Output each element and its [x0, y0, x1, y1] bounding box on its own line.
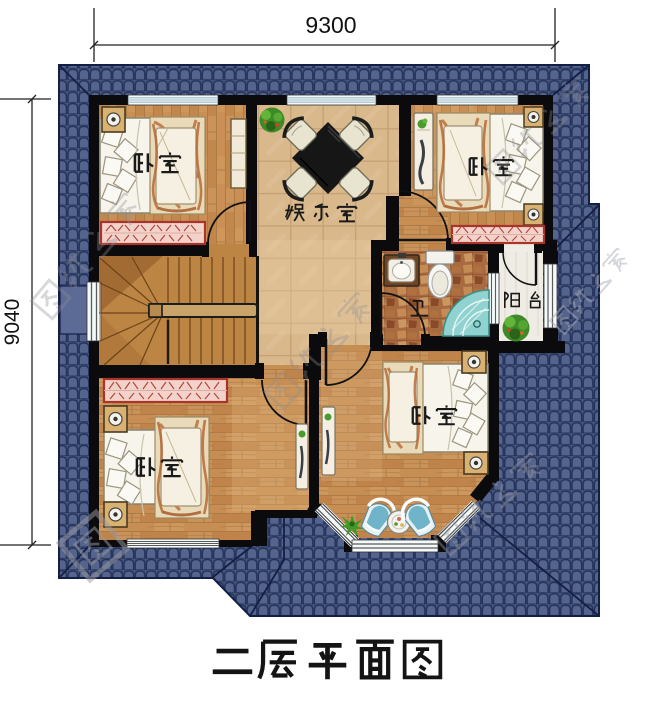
svg-text:9300: 9300	[305, 12, 356, 38]
svg-text:9040: 9040	[1, 299, 24, 346]
